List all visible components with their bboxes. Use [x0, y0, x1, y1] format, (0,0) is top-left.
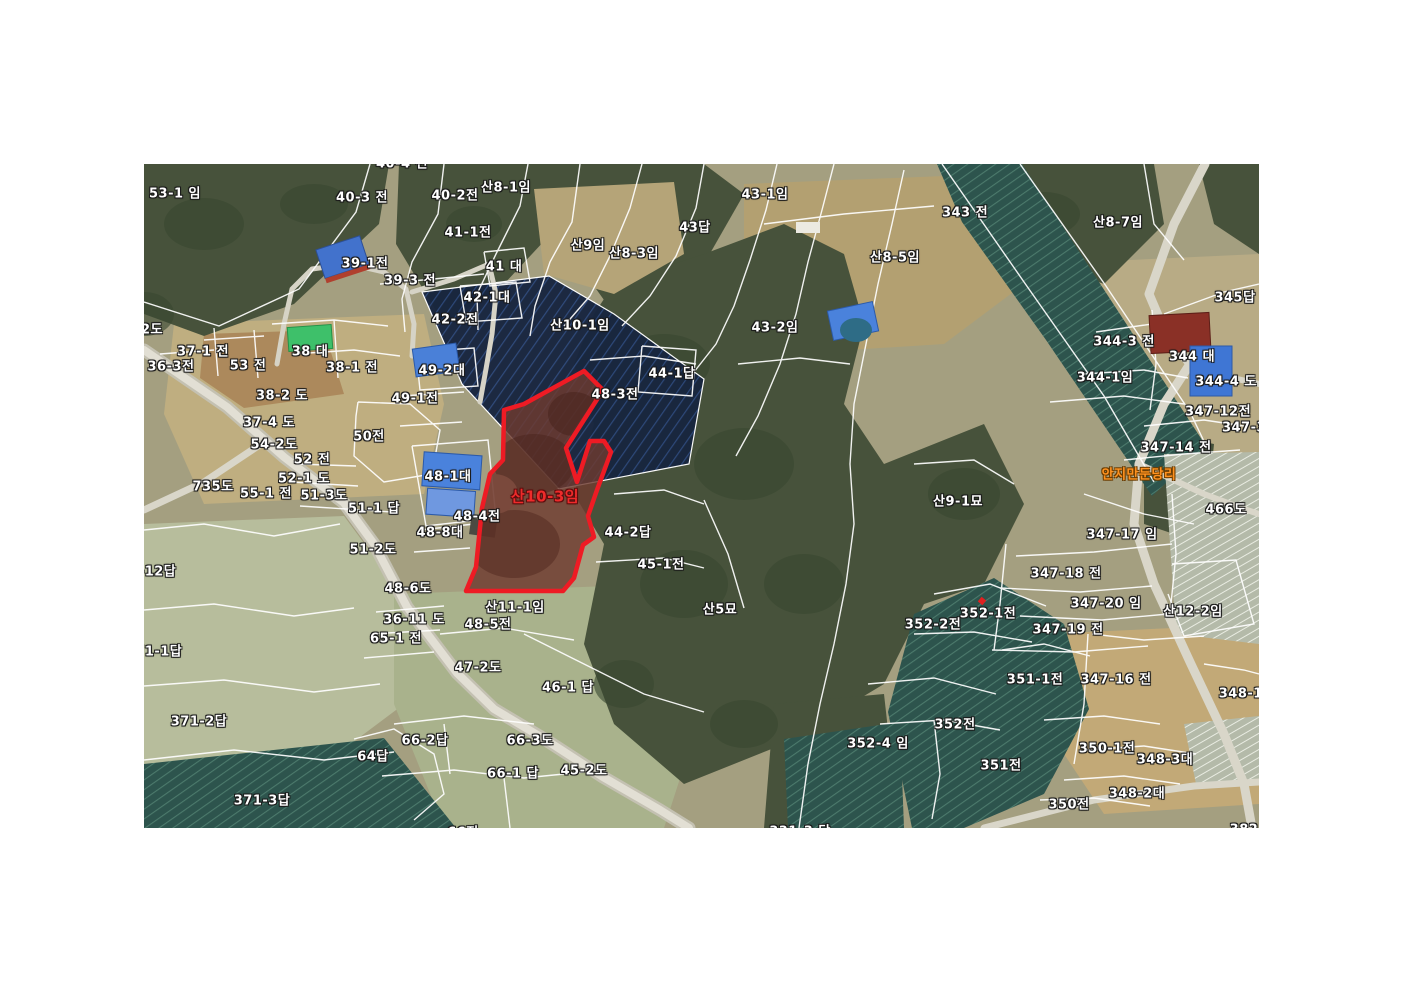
parcel-label: 41 대	[486, 256, 523, 275]
parcel-label: 344 대	[1169, 346, 1215, 365]
parcel-label: 371-2답	[171, 711, 228, 730]
parcel-label: 347-3	[1222, 421, 1259, 436]
parcel-label: 산9임	[571, 235, 605, 254]
parcel-label: 352-1전	[960, 603, 1017, 622]
parcel-label: 347-16 전	[1080, 669, 1151, 688]
parcel-label: 39-1전	[342, 253, 389, 272]
parcel-label: 51-1 답	[348, 498, 400, 517]
parcel-label: 산12-2임	[1163, 601, 1222, 620]
highlighted-parcel-label: 산10-3임	[511, 486, 579, 507]
parcel-label: 산8-7임	[1093, 212, 1143, 231]
parcel-label: 66전	[447, 822, 479, 829]
parcel-label: 348-1전	[1219, 683, 1259, 702]
parcel-label: 45-2도	[561, 760, 608, 779]
parcel-label: 51-2도	[350, 539, 397, 558]
parcel-label: 331-3 답	[769, 821, 831, 829]
parcel-label: 41-1전	[445, 222, 492, 241]
parcel-label: 48-5전	[465, 614, 512, 633]
parcel-label: 351-1전	[1007, 669, 1064, 688]
parcel-label: 49-1전	[392, 388, 439, 407]
parcel-label: 371-3답	[234, 790, 291, 809]
parcel-label: 51-3도	[301, 485, 348, 504]
parcel-label: 382	[1230, 823, 1259, 829]
parcel-label: 53-1 임	[149, 183, 201, 202]
parcel-label: 344-1임	[1077, 367, 1134, 386]
parcel-label: 40-4 전	[376, 164, 428, 172]
parcel-label: 48-3전	[592, 384, 639, 403]
parcel-label: 40-3 전	[336, 187, 388, 206]
parcel-label: 45-1전	[638, 554, 685, 573]
parcel-label: 350전	[1048, 794, 1089, 813]
parcel-label: 40-2전	[432, 185, 479, 204]
parcel-label: 347-14 전	[1140, 437, 1211, 456]
parcel-label: 55-1 전	[240, 483, 292, 502]
parcel-label: 48-8대	[417, 522, 464, 541]
parcel-label: 산8-3임	[609, 243, 659, 262]
parcel-label: 38-2 도	[256, 385, 308, 404]
parcel-label: 2도	[144, 319, 163, 338]
parcel-label: 44-2답	[605, 522, 652, 541]
parcel-label: 46-1 답	[542, 677, 594, 696]
parcel-label: 348-2대	[1109, 783, 1166, 802]
parcel-label: 산8-1임	[481, 177, 531, 196]
parcel-label: 344-3 전	[1093, 331, 1155, 350]
parcel-label: 42-2전	[432, 309, 479, 328]
parcel-label: 54-2도	[251, 434, 298, 453]
parcel-label: 49-2대	[419, 360, 466, 379]
parcel-label: 66-1 답	[487, 763, 539, 782]
parcel-label: 352전	[934, 714, 975, 733]
parcel-label: 산8-5임	[870, 247, 920, 266]
parcel-label: 36-11 도	[383, 609, 445, 628]
parcel-label: 산5묘	[703, 599, 737, 618]
parcel-label: 43-2임	[752, 317, 799, 336]
cadastral-map[interactable]: 53-1 임40-4 전40-3 전40-2전산8-1임41-1전39-1전39…	[144, 164, 1259, 828]
parcel-label: 39-3 전	[384, 270, 436, 289]
parcel-label: 43답	[679, 217, 711, 236]
parcel-label: 44-1답	[649, 363, 696, 382]
parcel-label: 352-2전	[905, 614, 962, 633]
parcel-label: 466도	[1205, 499, 1246, 518]
parcel-label: 65-1 전	[370, 628, 422, 647]
parcel-label: 343 전	[942, 202, 988, 221]
parcel-label: 38 대	[292, 341, 329, 360]
parcel-label: 345답	[1214, 287, 1255, 306]
parcel-label: 47-2도	[455, 657, 502, 676]
parcel-label: 48-6도	[385, 578, 432, 597]
parcel-label: 52 전	[294, 449, 331, 468]
parcel-label: 347-20 임	[1070, 593, 1141, 612]
parcel-label: 344-4 도	[1195, 371, 1257, 390]
parcel-label: 48-1대	[425, 466, 472, 485]
parcel-label: 351전	[980, 755, 1021, 774]
parcel-label: 37-12답	[144, 561, 176, 580]
parcel-label: 37-4 도	[243, 412, 295, 431]
parcel-label: 371-1답	[144, 641, 182, 660]
parcel-label: 64답	[357, 746, 389, 765]
parcel-label: 산9-1묘	[933, 491, 983, 510]
parcel-label: 66-2답	[402, 730, 449, 749]
parcel-label: 347-18 전	[1030, 563, 1101, 582]
parcel-label: 735도	[192, 476, 233, 495]
parcel-label: 347-17 임	[1086, 524, 1157, 543]
parcel-label: 347-12전	[1185, 401, 1251, 420]
parcel-label: 36-3전	[148, 356, 195, 375]
parcel-label: 53 전	[230, 355, 267, 374]
parcel-label: 42-1대	[464, 287, 511, 306]
parcel-label: 66-3도	[507, 730, 554, 749]
parcel-label: 347-19 전	[1032, 619, 1103, 638]
parcel-label: 산10-1임	[550, 315, 609, 334]
parcel-label: 352-4 임	[847, 733, 909, 752]
parcel-label: 38-1 전	[326, 357, 378, 376]
parcel-label: 50전	[353, 426, 385, 445]
parcel-labels-layer: 53-1 임40-4 전40-3 전40-2전산8-1임41-1전39-1전39…	[144, 164, 1259, 828]
parcel-label: 350-1전	[1079, 738, 1136, 757]
parcel-label: 348-3대	[1137, 749, 1194, 768]
village-name-label: 안지만둔당리	[1102, 464, 1177, 483]
parcel-label: 43-1임	[742, 184, 789, 203]
